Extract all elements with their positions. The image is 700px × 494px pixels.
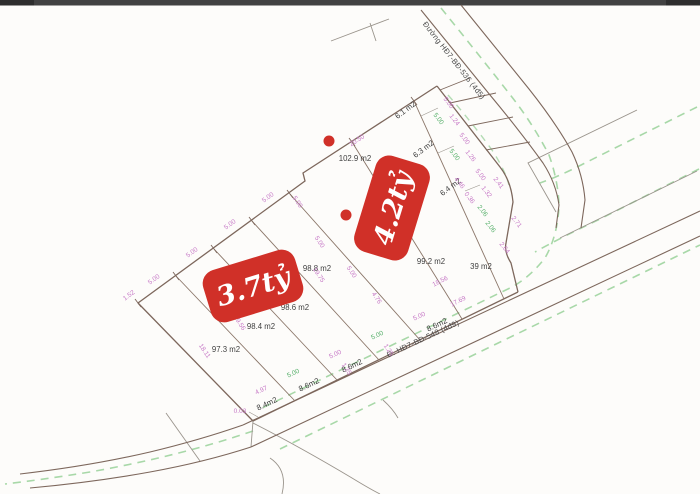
red-dot-marker — [324, 136, 335, 147]
road-548 — [20, 211, 700, 488]
cadastral-map-screenshot: Đường HĐ7-BĐ-536 (4đ5) Đ. HĐ7-BĐ-548 (4đ… — [0, 0, 700, 494]
dim-label: 4.97 — [254, 385, 269, 397]
right-corridor-line-1 — [528, 110, 637, 212]
dim-label: 2.64 — [498, 241, 512, 256]
red-dot-marker — [341, 210, 352, 221]
area-label: 102.9 m2 — [339, 154, 372, 163]
dim-label: 2.06 — [476, 204, 490, 219]
dim-label: 1.52 — [122, 289, 137, 302]
area-label: 6.3 m2 — [411, 138, 435, 160]
area-label: 99.2 m2 — [417, 257, 445, 266]
dim-label: 5.00 — [286, 368, 301, 380]
top-bar-strip — [0, 0, 700, 6]
dim-label: 18.11 — [197, 343, 212, 360]
dim-label: 0.03 — [234, 408, 247, 415]
dim-label: 5.00 — [313, 235, 326, 250]
dim-label: 2.41 — [492, 176, 506, 191]
area-label: 39 m2 — [470, 262, 492, 271]
price-badge-left: 3.7tỷ — [199, 246, 307, 326]
junction-curve-a — [253, 423, 380, 494]
dim-label: 5.00 — [328, 349, 343, 361]
leader-0-03 — [249, 412, 258, 417]
top-branch-line — [331, 19, 389, 41]
area-label: 6.1 m2 — [393, 99, 417, 121]
dim-label: 4.76 — [370, 291, 383, 306]
dim-label: 5.00 — [345, 265, 358, 280]
top-bar-left-cap — [0, 0, 34, 6]
road-548-lower-edge-west — [30, 447, 251, 488]
road-536-label: Đường HĐ7-BĐ-536 (4đ5) — [421, 20, 487, 101]
dim-label: 1.26 — [464, 149, 478, 164]
junction-curve-c — [383, 400, 398, 418]
top-bar — [0, 0, 700, 6]
leader-6-4 — [465, 185, 480, 191]
road-548-upper-edge-west — [20, 425, 243, 474]
planning-dashed-lines — [5, 8, 700, 484]
dim-label: 5.00 — [442, 96, 456, 111]
planning-line-road548-south — [280, 245, 700, 449]
dim-label: 2.71 — [510, 215, 524, 230]
sliver-tick-1 — [450, 93, 496, 103]
area-label: 97.3 m2 — [212, 345, 240, 354]
dim-label: 18.56 — [431, 275, 449, 289]
tick-nw-0 — [135, 299, 141, 307]
cadastral-map-canvas: Đường HĐ7-BĐ-536 (4đ5) Đ. HĐ7-BĐ-548 (4đ… — [0, 0, 700, 494]
road-536-right-edge — [461, 5, 585, 228]
dim-label: 0.36 — [463, 191, 477, 206]
top-bar-right-cap — [666, 0, 700, 6]
junction-curve-b — [270, 458, 284, 494]
dim-label: 5.00 — [432, 112, 446, 127]
dim-label: 20.50 — [348, 133, 366, 148]
dim-label: 1.32 — [480, 185, 494, 200]
dim-label: 5.00 — [370, 330, 385, 342]
dim-label: 5.00 — [412, 311, 427, 323]
right-corridor-line-2 — [560, 171, 697, 238]
dim-label: 5.00 — [147, 273, 162, 286]
dim-label: 5.00 — [261, 191, 276, 204]
top-branch-tick — [370, 23, 376, 41]
dim-label: 5.00 — [185, 246, 200, 259]
boundary-ticks — [135, 78, 530, 307]
dim-label: 5.00 — [448, 148, 462, 163]
marker-dots — [324, 136, 352, 221]
dimension-labels: 1.52 5.00 5.00 5.00 5.00 20.50 18.11 19.… — [122, 96, 523, 415]
dim-label: 5.00 — [223, 218, 238, 231]
price-badge-right: 4.2tỷ — [351, 152, 434, 264]
boundary-road-crossing — [251, 421, 253, 447]
area-label: 98.4 m2 — [247, 322, 275, 331]
dim-label: 5.00 — [474, 168, 488, 183]
dim-label: 17.69 — [449, 295, 467, 309]
sliver-tick-3 — [486, 142, 530, 150]
dim-label: 5.00 — [458, 132, 472, 147]
planning-line-top-right — [540, 107, 697, 183]
dim-label: 2.06 — [484, 220, 498, 235]
junction-side-line — [166, 413, 200, 461]
sliver-tick-2 — [468, 117, 513, 126]
